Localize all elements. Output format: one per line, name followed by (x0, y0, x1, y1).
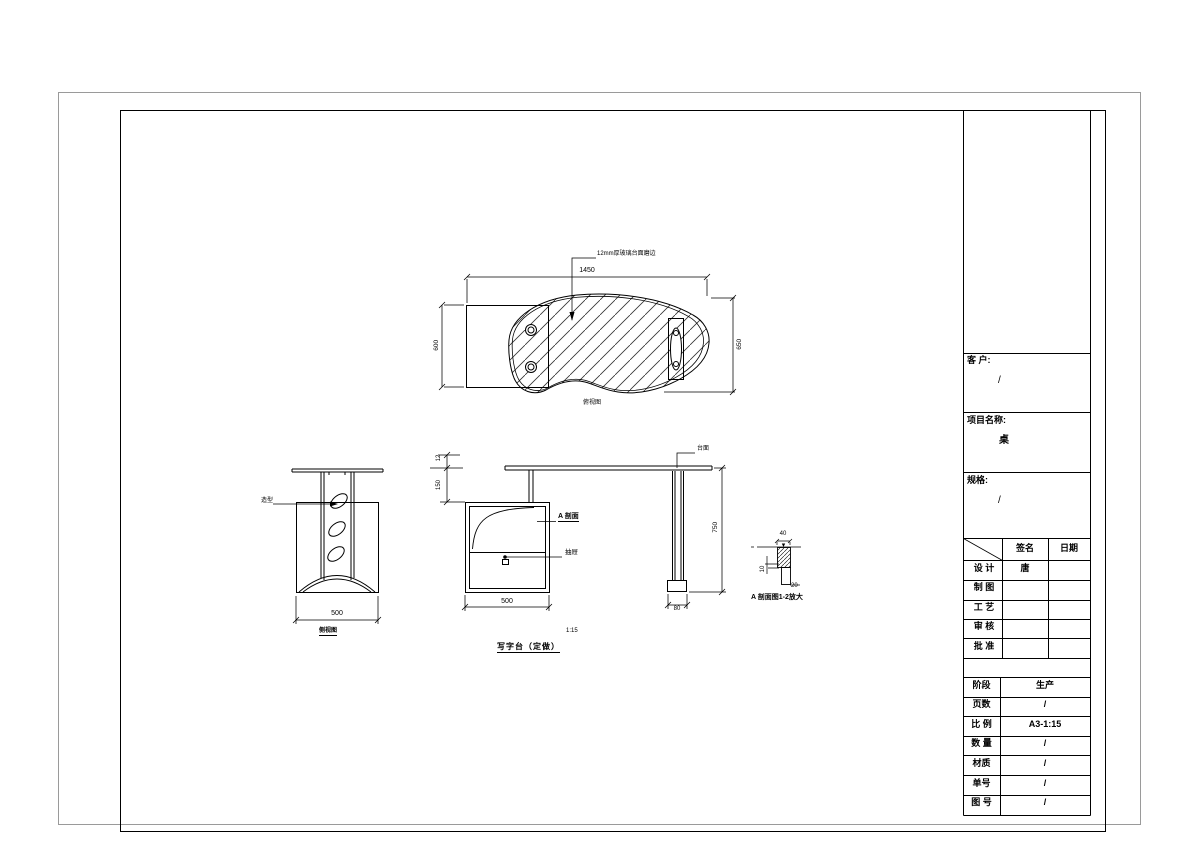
dim-detail-top: 40 (775, 531, 791, 537)
info-row-value: / (1000, 739, 1090, 748)
glass-note: 12mm厚玻璃台面磨边 (597, 251, 656, 257)
info-row-value: / (1000, 779, 1090, 788)
project-value: 桌 (999, 436, 1009, 446)
date-column-header: 日期 (1048, 544, 1090, 553)
info-row-value: / (1000, 798, 1090, 807)
view-title: 写字台（定做） (497, 643, 560, 653)
sign-row-label: 制 图 (966, 583, 1002, 592)
dim-top-right: 650 (737, 332, 744, 356)
dim-detail-right: 20 (791, 583, 798, 589)
detail-caption: A 剖面图1-2放大 (751, 594, 803, 601)
info-row-label: 数 量 (963, 739, 1000, 748)
panel-view-dimensions (273, 504, 381, 624)
sign-column-header: 签名 (1002, 544, 1048, 553)
cad-drawing-linework (0, 0, 1191, 842)
front-view-linework (430, 452, 712, 611)
sign-row-label: 设 计 (966, 564, 1002, 573)
panel-view-caption: 侧视图 (319, 628, 337, 636)
info-row-label: 页数 (963, 700, 1000, 709)
sign-row-value: 唐 (1002, 564, 1048, 573)
project-label: 项目名称: (967, 416, 1006, 425)
tabletop-note: 台面 (697, 446, 709, 452)
sign-row-label: 批 准 (966, 642, 1002, 651)
info-row-value: / (1000, 759, 1090, 768)
panel-note: 造型 (261, 498, 273, 504)
client-label: 客 户: (967, 356, 991, 365)
client-value: / (998, 376, 1001, 386)
info-row-label: 阶段 (963, 681, 1000, 690)
info-row-label: 材质 (963, 759, 1000, 768)
info-row-value: A3-1:15 (1000, 720, 1090, 729)
dim-cabinet-width: 500 (492, 598, 522, 605)
dim-top-thickness: 12 (436, 450, 442, 466)
dim-detail-left: 10 (760, 561, 766, 577)
dim-panel-width: 500 (320, 610, 354, 617)
info-row-label: 比 例 (963, 720, 1000, 729)
info-row-label: 图 号 (963, 798, 1000, 807)
top-view-caption: 俯视图 (578, 400, 606, 406)
dim-top-width: 1450 (565, 267, 609, 274)
dim-foot-width: 80 (667, 606, 687, 612)
drawer-label: 抽屉 (565, 550, 578, 557)
cad-sheet: 12mm厚玻璃台面磨边 1450 600 650 俯视图 造型 500 侧视图 … (0, 0, 1191, 842)
info-row-value: / (1000, 700, 1090, 709)
dim-top-left: 600 (434, 333, 441, 357)
title-block-grid (964, 111, 1091, 816)
dim-leg-height: 750 (713, 515, 720, 539)
panel-view-linework (273, 469, 383, 624)
spec-value: / (998, 496, 1001, 506)
leader-dot (503, 555, 507, 559)
section-a-label: A 剖面 (558, 513, 579, 522)
title-block-diagonal (964, 539, 1003, 561)
sign-row-label: 审 核 (966, 622, 1002, 631)
info-row-label: 单号 (963, 779, 1000, 788)
spec-label: 规格: (967, 476, 988, 485)
sign-row-label: 工 艺 (966, 603, 1002, 612)
top-view-linework (439, 258, 736, 395)
front-view-dimensions (430, 452, 562, 611)
dim-apron-height: 150 (436, 477, 442, 493)
scale-note: 1:15 (566, 628, 578, 634)
info-row-value: 生产 (1000, 681, 1090, 690)
detail-arrow (782, 544, 785, 548)
detail-section-linework (751, 539, 801, 585)
